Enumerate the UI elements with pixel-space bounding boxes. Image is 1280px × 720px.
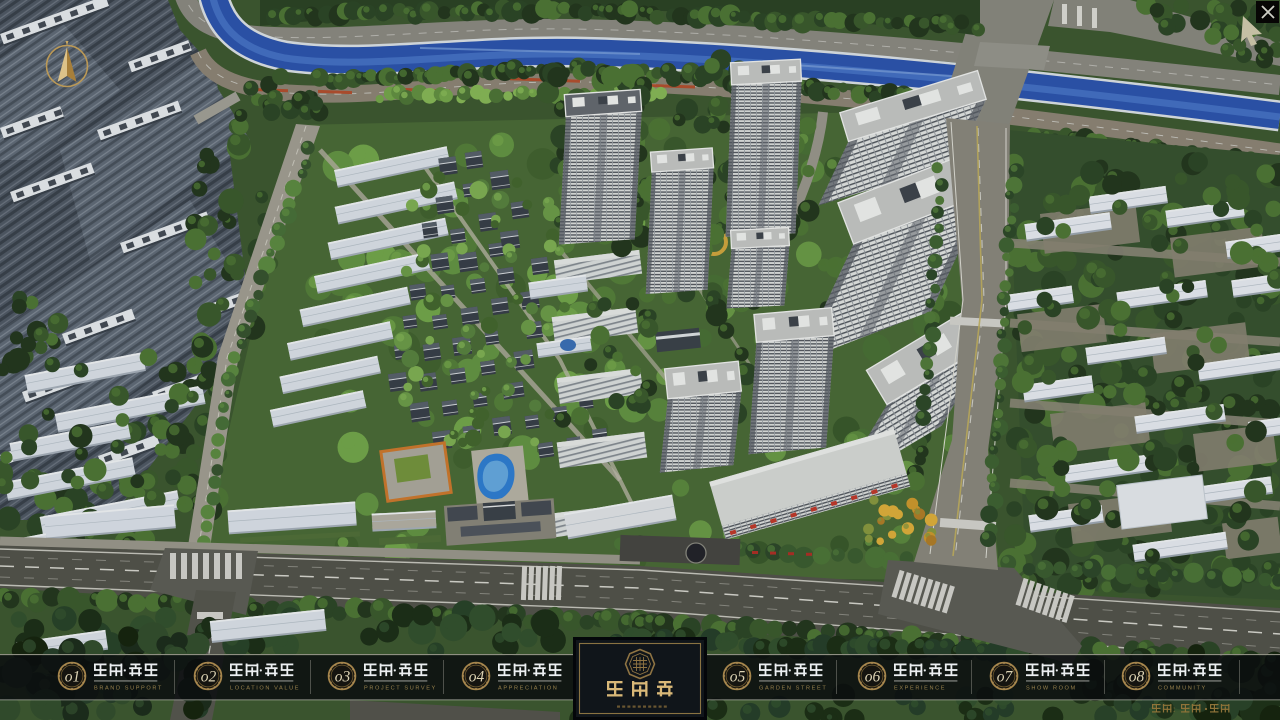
- svg-text::: :: [1173, 705, 1175, 714]
